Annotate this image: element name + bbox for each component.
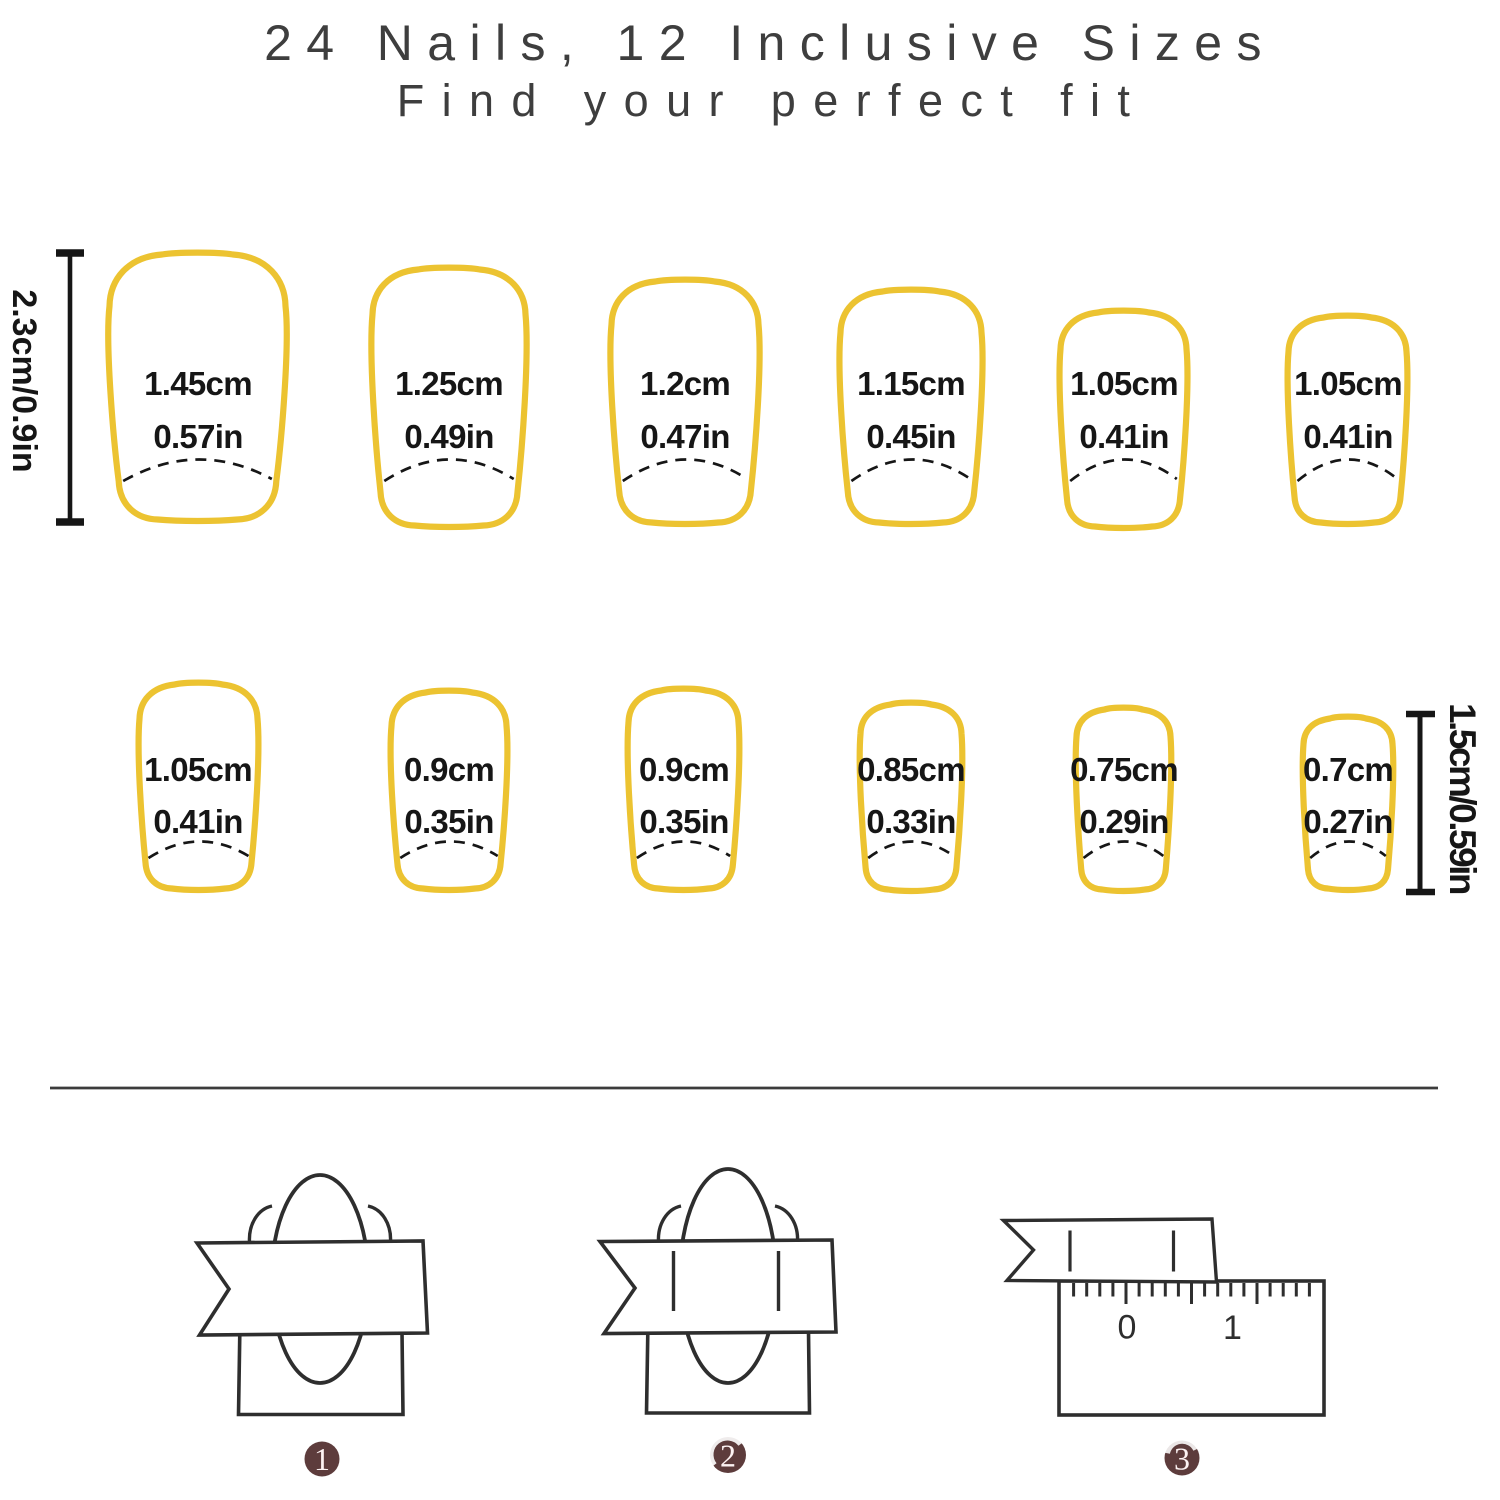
svg-text:0.45in: 0.45in [866, 418, 955, 455]
svg-text:1.2cm: 1.2cm [640, 365, 730, 402]
svg-text:0: 0 [1118, 1309, 1137, 1347]
svg-text:0.9cm: 0.9cm [639, 751, 729, 788]
svg-text:1.15cm: 1.15cm [857, 365, 965, 402]
svg-text:1.05cm: 1.05cm [144, 751, 252, 788]
svg-text:0.35in: 0.35in [404, 803, 493, 840]
svg-text:1: 1 [1223, 1309, 1242, 1347]
svg-text:24 Nails, 12 Inclusive Sizes: 24 Nails, 12 Inclusive Sizes [264, 15, 1276, 71]
svg-text:1.05cm: 1.05cm [1070, 365, 1178, 402]
svg-text:3: 3 [1174, 1441, 1190, 1477]
svg-text:0.41in: 0.41in [153, 803, 242, 840]
svg-text:2.3cm/0.9in: 2.3cm/0.9in [5, 289, 43, 472]
svg-text:0.7cm: 0.7cm [1303, 751, 1393, 788]
svg-text:0.35in: 0.35in [639, 803, 728, 840]
svg-text:0.41in: 0.41in [1303, 418, 1392, 455]
svg-text:0.27in: 0.27in [1303, 803, 1392, 840]
svg-text:0.47in: 0.47in [640, 418, 729, 455]
svg-text:0.85cm: 0.85cm [857, 751, 965, 788]
svg-text:Find your perfect fit: Find your perfect fit [397, 75, 1148, 126]
svg-text:1.5cm/0.59in: 1.5cm/0.59in [1442, 703, 1483, 894]
svg-text:0.9cm: 0.9cm [404, 751, 494, 788]
svg-text:1: 1 [314, 1441, 330, 1477]
svg-text:0.49in: 0.49in [404, 418, 493, 455]
svg-text:0.29in: 0.29in [1079, 803, 1168, 840]
svg-text:0.41in: 0.41in [1079, 418, 1168, 455]
svg-text:1.45cm: 1.45cm [144, 365, 252, 402]
svg-text:1.05cm: 1.05cm [1294, 365, 1402, 402]
svg-text:0.57in: 0.57in [153, 418, 242, 455]
svg-text:2: 2 [720, 1438, 736, 1474]
svg-text:0.33in: 0.33in [866, 803, 955, 840]
svg-text:1.25cm: 1.25cm [395, 365, 503, 402]
svg-text:0.75cm: 0.75cm [1070, 751, 1178, 788]
